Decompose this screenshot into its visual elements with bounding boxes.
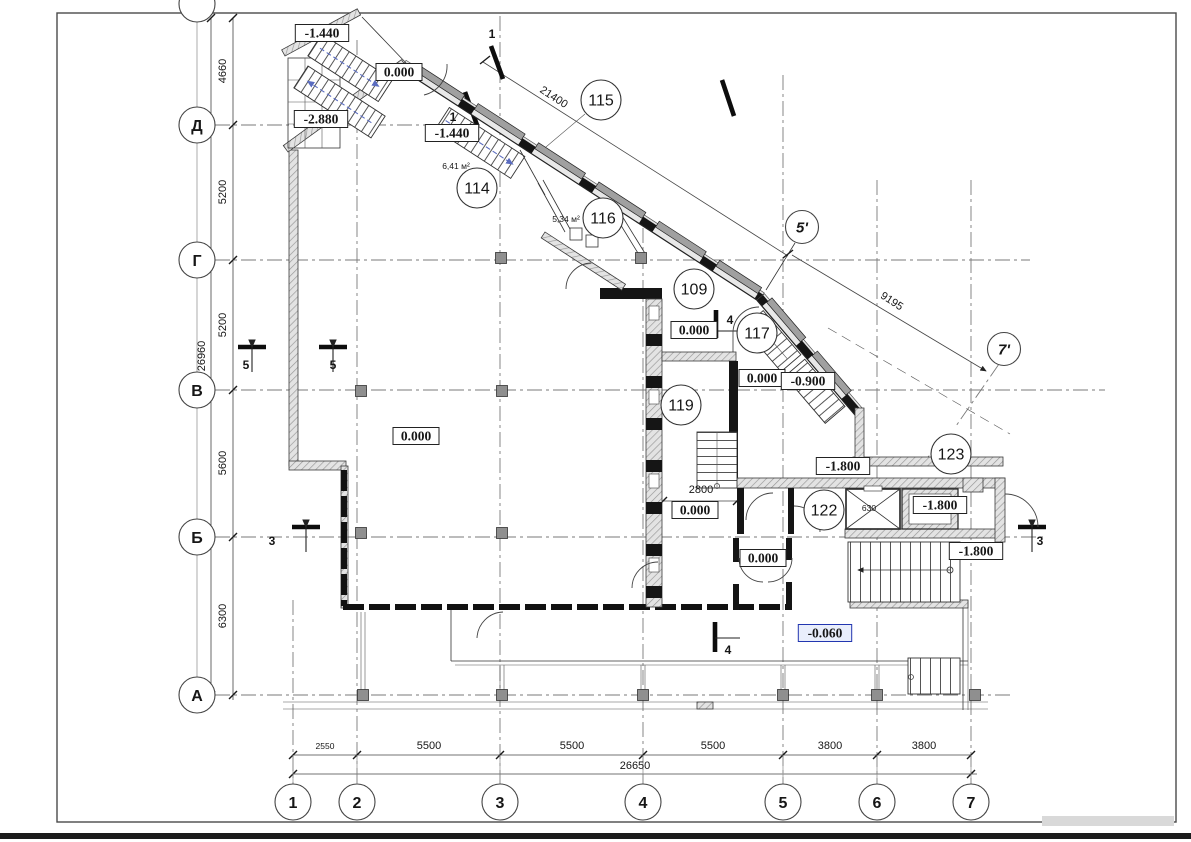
- terrace: [451, 600, 968, 710]
- elevation-mark: -1.440: [305, 26, 340, 41]
- elevation-mark: -0.060: [808, 626, 843, 641]
- room123-east-wall: [995, 478, 1005, 542]
- west-wall: [289, 150, 298, 466]
- section-label: 5: [330, 358, 337, 372]
- axis-bubble-label: 4: [639, 795, 648, 812]
- fixture: [570, 228, 582, 240]
- section-label: 5: [243, 358, 250, 372]
- axis-bubble-label: Д: [191, 118, 203, 135]
- dim-text: 4660: [217, 59, 229, 83]
- axis-bubble-aux-label: 7': [998, 342, 1010, 359]
- room-number: 115: [588, 93, 614, 110]
- elevation-mark: 0.000: [384, 65, 415, 80]
- axis-bubble-label: Б: [191, 530, 203, 547]
- room-number: 109: [681, 282, 708, 299]
- dim-text: 26650: [620, 760, 651, 772]
- dim-text: 5500: [560, 740, 584, 752]
- axis-bubble-label: 2: [353, 795, 362, 812]
- dim-text: 630: [862, 503, 876, 513]
- dim-text: 3800: [818, 740, 842, 752]
- elevation-mark: 0.000: [401, 429, 432, 444]
- west-wall-jog: [289, 461, 346, 470]
- stair-a-row: [908, 658, 960, 694]
- room-number: 123: [938, 447, 965, 464]
- axis-5p-leader: [766, 243, 795, 290]
- floor-plan-sheet: ДГВБА12345675'7'115114116109117119122123…: [0, 0, 1191, 842]
- dim-text: 5600: [217, 451, 229, 475]
- section-1-flag: [722, 80, 734, 116]
- dim-text: 5500: [417, 740, 441, 752]
- elevation-mark: -2.880: [304, 112, 339, 127]
- section-label: 4: [725, 643, 732, 657]
- axis-bubble-label: 7: [967, 795, 976, 812]
- room-number: 119: [668, 398, 694, 415]
- dim-text: 5200: [217, 180, 229, 204]
- room-number: 114: [464, 181, 490, 198]
- structural-columns: [356, 253, 981, 701]
- dim-text: 6300: [217, 604, 229, 628]
- axis-7p-leader: [956, 364, 999, 426]
- room123-north-wall: [853, 457, 1003, 466]
- dim-text: 3800: [912, 740, 936, 752]
- elevation-mark: -0.900: [791, 374, 826, 389]
- elevation-mark: -1.440: [435, 126, 470, 141]
- colonnade-posts: [361, 612, 879, 691]
- axis-bubble-aux-label: 5': [796, 220, 808, 237]
- axis-bubble-label: В: [191, 383, 203, 400]
- elevation-mark: 0.000: [747, 371, 778, 386]
- room122-partition: [788, 488, 794, 534]
- dim-text: 5500: [701, 740, 725, 752]
- room-area-label: 6,41 м²: [442, 161, 470, 171]
- dim-text: 26960: [196, 341, 208, 372]
- section-3-flag: [292, 527, 320, 552]
- section-label: 1: [450, 110, 457, 124]
- door-123: [1005, 494, 1038, 527]
- dim-text: 2550: [316, 741, 335, 751]
- axis-bubble-label: 5: [779, 795, 788, 812]
- dim-text: 9195: [878, 290, 905, 313]
- dimension-lines: [207, 14, 986, 784]
- annotations: ДГВБА12345675'7'115114116109117119122123…: [179, 0, 1044, 820]
- elevation-mark: 0.000: [748, 551, 779, 566]
- elevation-mark: 0.000: [680, 503, 711, 518]
- floor-plan-drawing: ДГВБА12345675'7'115114116109117119122123…: [0, 0, 1191, 842]
- door-terrace: [477, 612, 503, 638]
- stairs: [294, 34, 960, 694]
- elevation-mark: -1.800: [923, 498, 958, 513]
- door-122-a: [746, 493, 773, 520]
- room-number: 122: [811, 503, 838, 520]
- room-number: 117: [744, 326, 770, 343]
- axis-bubble-label: 6: [873, 795, 882, 812]
- room-area-label: 5,34 м²: [552, 214, 580, 224]
- dim-text: 2800: [689, 484, 713, 496]
- south-core-wall: [845, 529, 1003, 538]
- room119-north-wall: [662, 352, 736, 361]
- axis-bubble-label: А: [191, 688, 203, 705]
- axis-bubble-label: 3: [496, 795, 505, 812]
- stair-119: [697, 432, 737, 489]
- elevation-mark: 0.000: [679, 323, 710, 338]
- elevation-mark: -1.800: [959, 544, 994, 559]
- elevation-mark: -1.800: [826, 459, 861, 474]
- section-label: 4: [727, 313, 734, 327]
- section-label: 3: [1037, 534, 1044, 548]
- stair-exterior-se: [848, 542, 960, 602]
- room122-west-wall: [737, 488, 744, 534]
- axis-bubble-label: 1: [289, 795, 298, 812]
- dim-text: 5200: [217, 313, 229, 337]
- hall-north-wall: [600, 288, 662, 299]
- section-label: 1: [489, 27, 496, 41]
- section-label: 3: [269, 534, 276, 548]
- axis-bubble-label: Г: [192, 253, 201, 270]
- sheet-frame: [0, 13, 1191, 839]
- room-number: 116: [590, 211, 616, 228]
- watermark: [1042, 816, 1174, 826]
- section-1-flag: [491, 46, 503, 79]
